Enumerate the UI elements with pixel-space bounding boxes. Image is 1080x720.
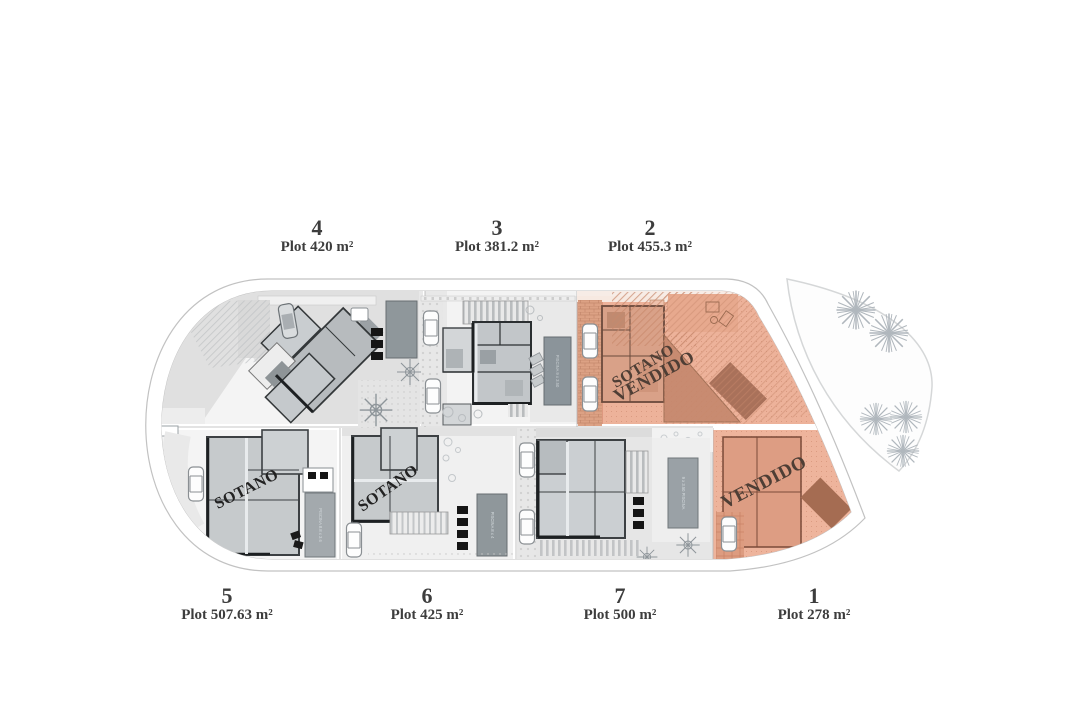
svg-text:PISCINA 8.8 x 3.6: PISCINA 8.8 x 3.6 xyxy=(318,508,323,542)
svg-text:PISCINA 8 x 4: PISCINA 8 x 4 xyxy=(490,512,495,539)
svg-text:PISCINA 9 x 3.50: PISCINA 9 x 3.50 xyxy=(555,355,560,388)
svg-text:9 x 3.50 PISCINA: 9 x 3.50 PISCINA xyxy=(681,477,686,510)
